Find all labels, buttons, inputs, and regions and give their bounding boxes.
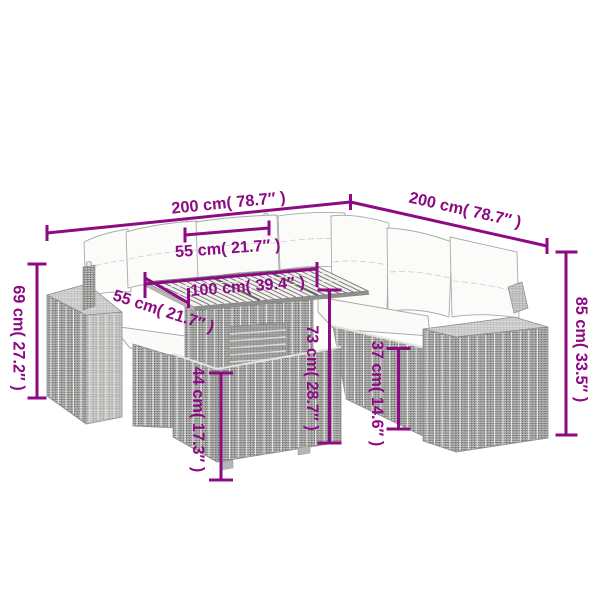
svg-text:44 cm( 17.3″ ): 44 cm( 17.3″ ) [189, 367, 207, 473]
svg-text:73 cm( 28.7″ ): 73 cm( 28.7″ ) [303, 325, 321, 431]
svg-text:85 cm( 33.5″ ): 85 cm( 33.5″ ) [572, 297, 590, 403]
svg-text:37 cm( 14.6″ ): 37 cm( 14.6″ ) [368, 341, 386, 447]
svg-text:69 cm( 27.2″ ): 69 cm( 27.2″ ) [10, 285, 28, 391]
